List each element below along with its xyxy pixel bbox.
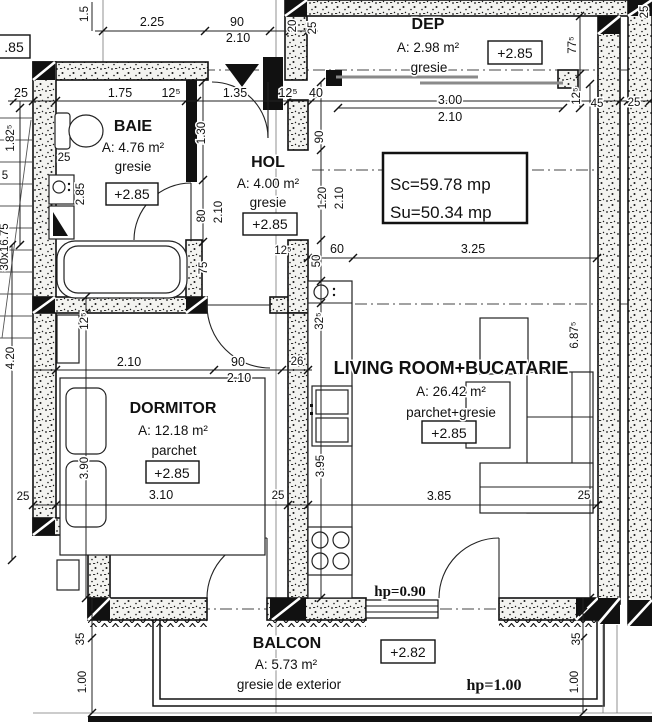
dim-2.25: 2.25 [140, 15, 164, 29]
dim-90: 90 [230, 15, 244, 29]
insulation-zigzag [267, 620, 366, 627]
room-area-dep: A: 2.98 m² [397, 40, 460, 55]
dim-12.5: 12⁵ [278, 86, 297, 100]
dim-35: 35 [571, 633, 583, 646]
insulation-zigzag [499, 620, 596, 627]
room-floor-dormitor: parchet [151, 443, 196, 458]
dim-25: 25 [17, 491, 30, 503]
bathtub-inner [64, 246, 180, 293]
dim-90: 90 [231, 355, 245, 369]
room-level-baie: +2.85 [114, 186, 150, 202]
room-level-living: +2.85 [431, 425, 467, 441]
room-area-balcon: A: 5.73 m² [255, 657, 318, 672]
summary-su: Su=50.34 mp [390, 203, 492, 222]
dim-1.30: 1.30 [196, 122, 208, 144]
room-title-balcon: BALCON [253, 635, 321, 652]
dim-3.10: 3.10 [149, 488, 173, 502]
note-partial: 5 [2, 170, 8, 182]
dim-25: 25 [639, 6, 651, 19]
dim-3.25: 3.25 [461, 242, 485, 256]
room-title-hol: HOL [251, 154, 285, 171]
dim-2.10: 2.10 [226, 31, 250, 45]
dim-75: 75 [198, 262, 210, 275]
living-balcony-door-arc [439, 538, 499, 598]
dim-2.10: 2.10 [227, 371, 251, 385]
balcony-outline [33, 620, 652, 722]
ground-line [88, 716, 652, 722]
room-area-dormitor: A: 12.18 m² [138, 423, 208, 438]
dim-60: 60 [330, 242, 344, 256]
room-title-living: LIVING ROOM+BUCATARIE [334, 358, 569, 378]
nightstand [57, 315, 79, 363]
wall-exterior-right-outer [628, 0, 652, 625]
dim-25: 25 [307, 22, 319, 35]
dim-1.00: 1.00 [77, 671, 89, 693]
dim-1.75: 1.75 [108, 86, 132, 100]
wall-dep-top [285, 0, 630, 16]
wall-entrance-jamb [263, 57, 283, 110]
insulation-zigzag [88, 620, 207, 627]
wall-baie-top [33, 62, 208, 80]
dim-6.875: 6.87⁵ [569, 321, 581, 348]
room-area-baie: A: 4.76 m² [102, 140, 165, 155]
room-level-dormitor: +2.85 [154, 465, 190, 481]
stove-burner [312, 553, 328, 569]
dim-25: 25 [272, 490, 285, 502]
dim-77.5: 77⁵ [567, 36, 579, 54]
nightstand [57, 560, 79, 590]
room-title-dep: DEP [412, 16, 445, 33]
dim-12.5: 12⁵ [274, 245, 292, 257]
room-floor-baie: gresie [115, 159, 152, 174]
dim-1.00: 1.00 [569, 671, 581, 693]
wall-hol-living-upper [288, 100, 308, 150]
stove-burner [312, 532, 328, 548]
stove-burner [333, 553, 349, 569]
room-title-baie: BAIE [114, 118, 153, 135]
dim-2.85: 2.85 [75, 183, 87, 205]
dim-3.90: 3.90 [79, 457, 91, 479]
wall-stub-dormitor-door [270, 297, 290, 313]
dim-1.35: 1.35 [223, 86, 247, 100]
dim-2.10: 2.10 [213, 201, 225, 223]
floor-plan: BAIE A: 4.76 m² gresie +2.85 HOL A: 4.00… [0, 0, 652, 722]
dim-4.20: 4.20 [5, 347, 17, 369]
dim-50: 50 [311, 255, 323, 268]
room-area-hol: A: 4.00 m² [237, 176, 300, 191]
wall-dep-stub-right [558, 70, 578, 88]
dim-3.95: 3.95 [315, 455, 327, 477]
dim-25: 25 [628, 97, 641, 109]
note-window-parapet: hp=0.90 [374, 584, 425, 600]
entrance-arrow-icon [225, 64, 259, 87]
dim-12.5: 12⁵ [571, 87, 583, 105]
toilet-bowl [69, 115, 103, 147]
dim-40: 40 [309, 86, 323, 100]
room-level-balcon: +2.82 [390, 644, 426, 660]
dim-2.10: 2.10 [438, 110, 462, 124]
dim-1.825: 1.82⁵ [5, 124, 17, 151]
room-area-living: A: 26.42 m² [416, 384, 486, 399]
note-level-cut: .85 [4, 39, 24, 55]
wall-dormitor-top [33, 297, 207, 313]
stove-burner [333, 532, 349, 548]
room-floor-dep: gresie [411, 60, 448, 75]
dim-90: 90 [314, 131, 326, 144]
dim-25: 25 [58, 152, 71, 164]
dim-45: 45 [591, 98, 604, 110]
dim-35: 35 [75, 633, 87, 646]
dim-3.00: 3.00 [438, 93, 462, 107]
dim-32.5: 32⁵ [314, 312, 326, 330]
dim-12.5: 12⁵ [79, 312, 91, 330]
room-level-dep: +2.85 [497, 45, 533, 61]
balcony-window [366, 600, 438, 618]
dim-12.5: 12⁵ [161, 86, 180, 100]
room-floor-hol: gresie [250, 195, 287, 210]
dim-20: 20 [287, 20, 299, 33]
washbasin-bowl [53, 181, 65, 193]
note-balcony-parapet: hp=1.00 [467, 677, 522, 694]
note-stair: 30x16.75 [0, 223, 11, 270]
dim-26: 26 [291, 356, 304, 368]
dim-25: 25 [578, 490, 591, 502]
toilet-tank [55, 113, 70, 149]
dim-3.85: 3.85 [427, 489, 451, 503]
floor-plan-drawing: BAIE A: 4.76 m² gresie +2.85 HOL A: 4.00… [0, 0, 652, 722]
dim-2.10: 2.10 [334, 187, 346, 209]
room-title-dormitor: DORMITOR [130, 400, 217, 417]
room-level-hol: +2.85 [252, 216, 288, 232]
dim-25: 25 [14, 86, 28, 100]
room-floor-balcon: gresie de exterior [237, 677, 342, 692]
room-floor-living: parchet+gresie [406, 405, 496, 420]
dim-80: 80 [196, 210, 208, 223]
dim-2.10: 2.10 [117, 355, 141, 369]
summary-sc: Sc=59.78 mp [390, 175, 491, 194]
dim-1.20: 1.20 [317, 187, 329, 209]
dim-1.5: 1.5 [79, 6, 91, 22]
